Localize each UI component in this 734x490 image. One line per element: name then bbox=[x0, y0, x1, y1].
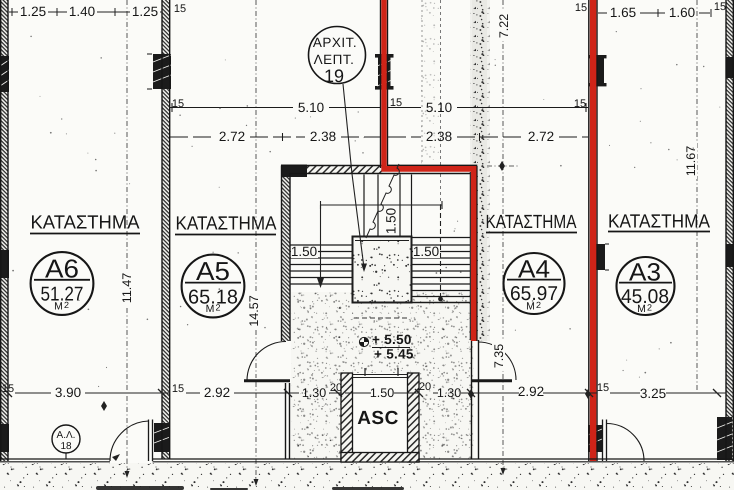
svg-text:15: 15 bbox=[172, 383, 184, 395]
svg-text:ASC: ASC bbox=[357, 408, 399, 429]
svg-text:11.67: 11.67 bbox=[684, 146, 698, 176]
svg-text:1.30: 1.30 bbox=[302, 386, 326, 400]
svg-text:2.38: 2.38 bbox=[426, 129, 452, 144]
svg-text:ΚΑΤΑΣΤΗΜΑ: ΚΑΤΑΣΤΗΜΑ bbox=[486, 212, 577, 233]
svg-text:3.90: 3.90 bbox=[55, 385, 81, 400]
svg-text:3.25: 3.25 bbox=[640, 386, 666, 401]
svg-text:5.10: 5.10 bbox=[298, 100, 324, 115]
svg-text:2: 2 bbox=[215, 303, 220, 313]
svg-text:1.65: 1.65 bbox=[610, 5, 636, 20]
svg-text:1.30: 1.30 bbox=[437, 386, 461, 400]
svg-text:2: 2 bbox=[536, 300, 541, 310]
svg-text:2.38: 2.38 bbox=[310, 129, 336, 144]
svg-text:7.35: 7.35 bbox=[492, 344, 506, 368]
svg-text:Α.Λ.: Α.Λ. bbox=[57, 430, 76, 441]
svg-text:15: 15 bbox=[174, 3, 186, 15]
svg-text:15: 15 bbox=[390, 97, 402, 109]
svg-text:Μ: Μ bbox=[526, 301, 535, 313]
svg-text:11.47: 11.47 bbox=[120, 273, 134, 303]
svg-text:18: 18 bbox=[60, 441, 72, 452]
svg-text:1.50: 1.50 bbox=[370, 386, 394, 400]
svg-text:Μ: Μ bbox=[637, 303, 646, 315]
svg-text:1.25: 1.25 bbox=[20, 4, 46, 19]
svg-text:1.50: 1.50 bbox=[413, 244, 439, 259]
svg-text:1.50: 1.50 bbox=[291, 244, 317, 259]
svg-text:15: 15 bbox=[597, 382, 609, 394]
svg-text:19: 19 bbox=[324, 66, 344, 86]
svg-text:5.10: 5.10 bbox=[426, 100, 452, 115]
svg-text:1.25: 1.25 bbox=[132, 4, 158, 19]
svg-text:+ 5.50: + 5.50 bbox=[372, 332, 412, 347]
svg-text:1.50: 1.50 bbox=[384, 208, 399, 234]
svg-text:7.22: 7.22 bbox=[497, 14, 511, 38]
svg-text:Μ: Μ bbox=[54, 301, 63, 313]
svg-text:1.60: 1.60 bbox=[669, 5, 695, 20]
svg-text:ΛΕΠΤ.: ΛΕΠΤ. bbox=[314, 52, 355, 67]
svg-text:20: 20 bbox=[419, 381, 431, 393]
svg-text:ΑΡΧΙΤ.: ΑΡΧΙΤ. bbox=[313, 35, 357, 50]
svg-text:2: 2 bbox=[647, 303, 652, 313]
svg-text:2.92: 2.92 bbox=[204, 385, 230, 400]
svg-text:ΚΑΤΑΣΤΗΜΑ: ΚΑΤΑΣΤΗΜΑ bbox=[176, 214, 277, 235]
svg-text:15: 15 bbox=[172, 98, 184, 110]
svg-text:15: 15 bbox=[574, 98, 586, 110]
svg-text:ΚΑΤΑΣΤΗΜΑ: ΚΑΤΑΣΤΗΜΑ bbox=[608, 212, 710, 233]
svg-text:A5: A5 bbox=[196, 256, 230, 286]
svg-text:+ 5.45: + 5.45 bbox=[374, 347, 414, 362]
svg-text:15: 15 bbox=[2, 383, 14, 395]
svg-text:14.57: 14.57 bbox=[247, 295, 261, 326]
svg-text:2.72: 2.72 bbox=[528, 129, 554, 144]
svg-text:15: 15 bbox=[575, 2, 587, 14]
svg-text:Μ: Μ bbox=[206, 303, 215, 315]
svg-text:2.72: 2.72 bbox=[219, 129, 245, 144]
svg-text:15: 15 bbox=[714, 1, 726, 13]
svg-text:20: 20 bbox=[330, 382, 342, 394]
svg-text:2.92: 2.92 bbox=[518, 384, 544, 399]
svg-text:ΚΑΤΑΣΤΗΜΑ: ΚΑΤΑΣΤΗΜΑ bbox=[31, 213, 140, 234]
svg-text:2: 2 bbox=[64, 300, 69, 310]
svg-text:1.40: 1.40 bbox=[69, 4, 95, 19]
